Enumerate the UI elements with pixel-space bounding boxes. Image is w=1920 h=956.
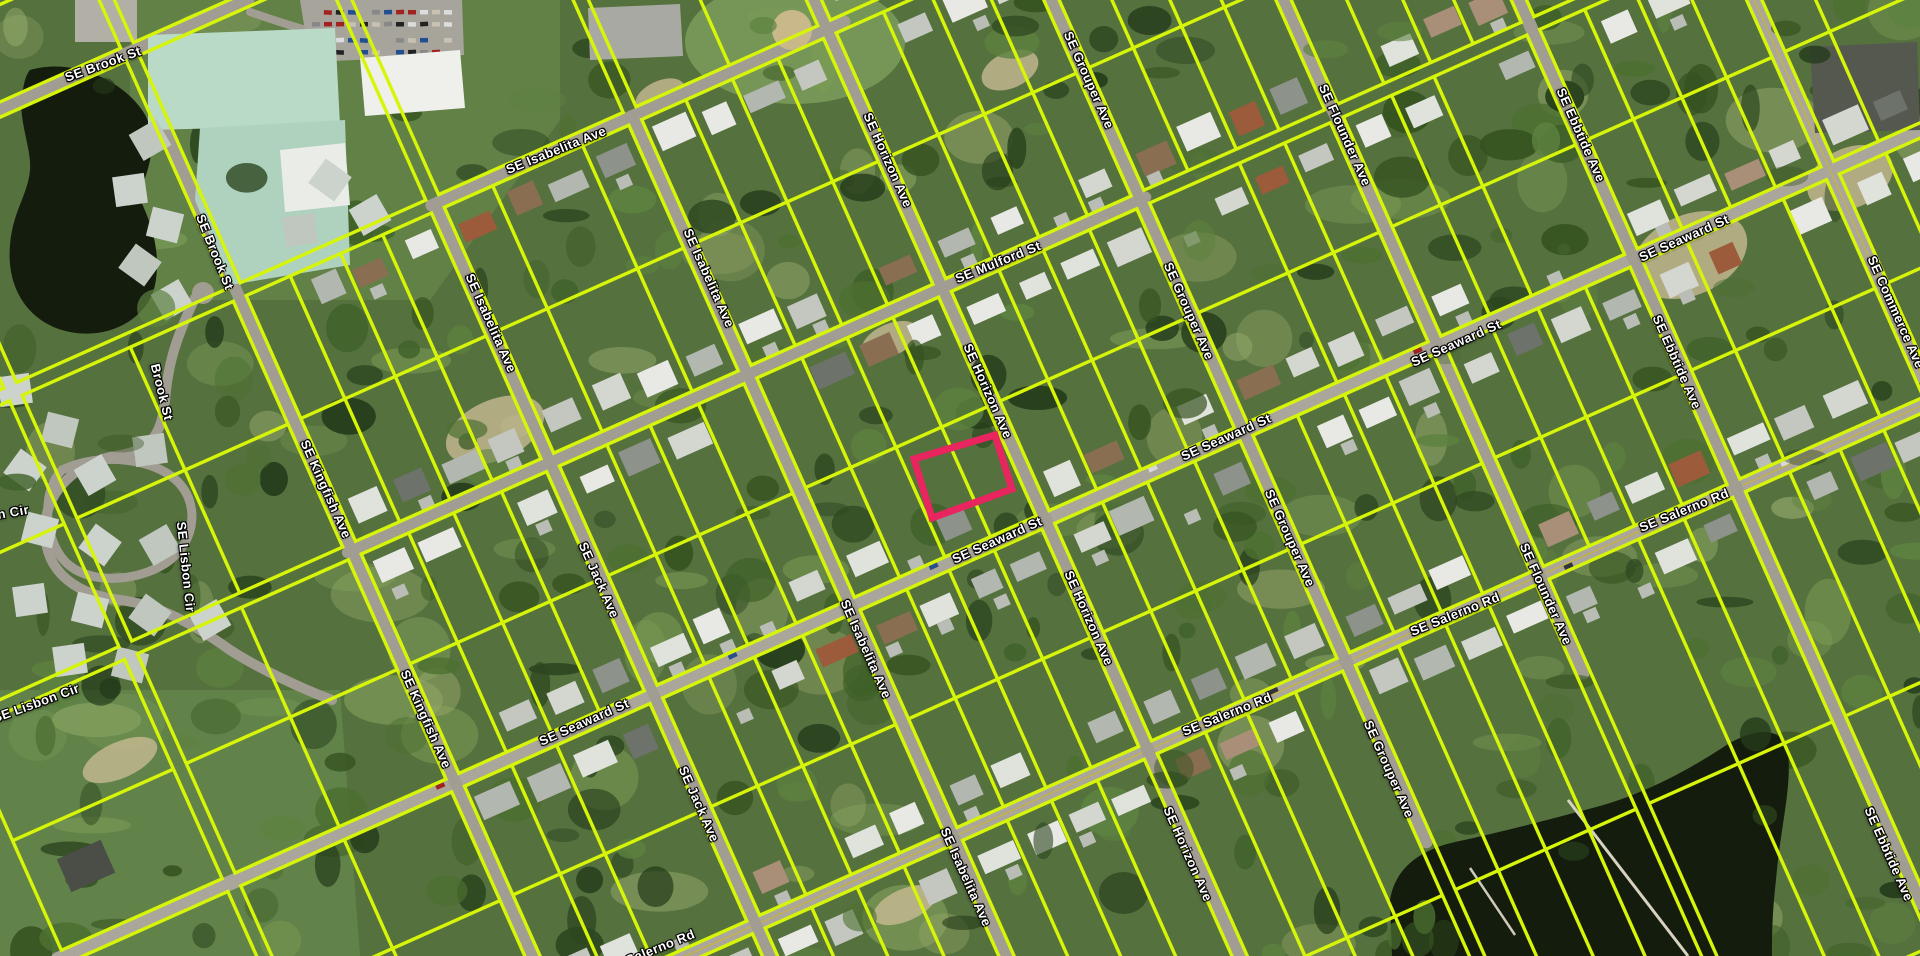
- condo-roof: [282, 213, 318, 247]
- parking-lot: [75, 0, 137, 42]
- building-roof: [360, 50, 465, 116]
- condo-roof: [52, 643, 88, 677]
- satellite-map-canvas: [0, 0, 1920, 956]
- condo-roof: [112, 173, 148, 207]
- condo-roof: [12, 583, 48, 617]
- map-viewport[interactable]: SE Brook StSE Brook StBrook StSE Isabeli…: [0, 0, 1920, 956]
- school-roof: [148, 28, 340, 130]
